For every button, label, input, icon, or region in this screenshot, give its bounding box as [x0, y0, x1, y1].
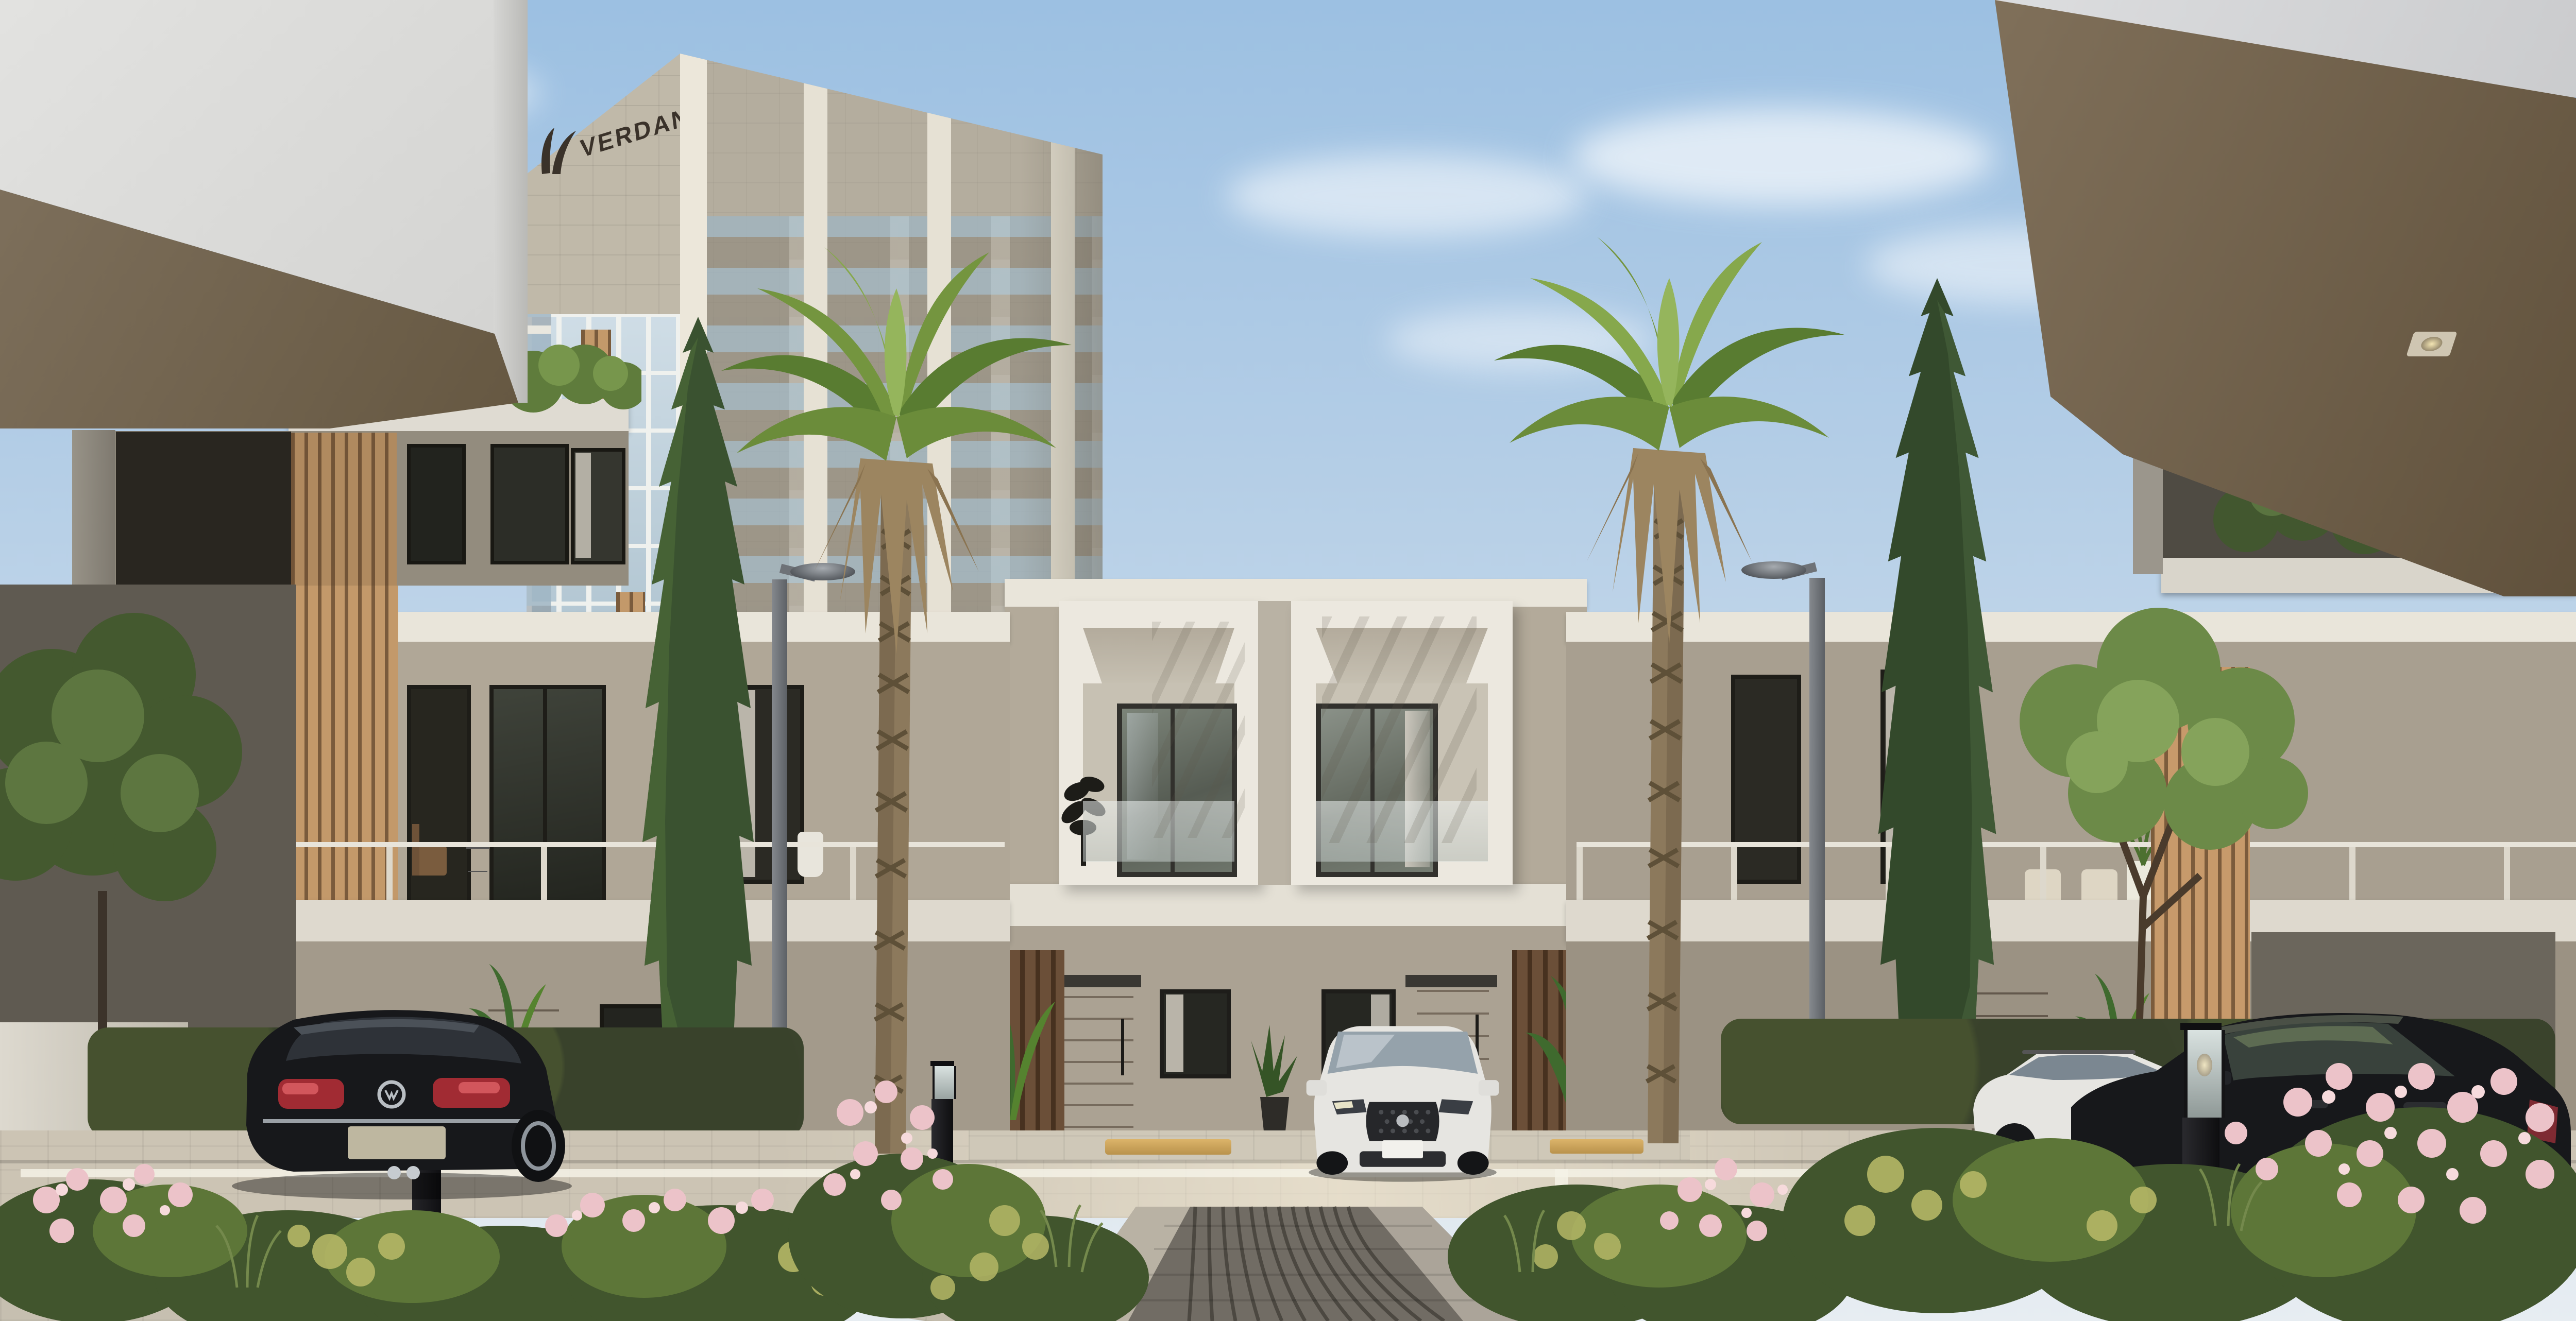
frond-shadow — [1152, 622, 1245, 838]
frond-shadow — [1322, 616, 1477, 843]
tail-light-glow — [282, 1083, 318, 1094]
flower-bed-center-left — [788, 1051, 1149, 1321]
render-canvas: VERDANA — [0, 0, 2576, 1321]
front-plate — [1382, 1140, 1423, 1158]
car-wheel — [1316, 1151, 1348, 1175]
foreground-soffit-right — [1989, 0, 2576, 603]
box-gap — [1258, 601, 1291, 885]
balcony-box-right — [1291, 601, 1513, 885]
recessed-downlight-icon — [2406, 332, 2458, 356]
window-curtain — [1166, 994, 1183, 1072]
flower-bed-left — [0, 1123, 907, 1321]
side-mirror-left — [1307, 1080, 1327, 1095]
palm-tree-left — [711, 242, 1082, 1169]
flower-bed-right — [1783, 1004, 2576, 1321]
palm-dry-skirt — [814, 458, 979, 654]
soffit-corner-column — [494, 0, 528, 403]
window-curtain — [575, 453, 591, 558]
maker-badge — [1396, 1114, 1409, 1127]
palm-dry-skirt — [1587, 448, 1752, 644]
palm-fronds — [1494, 237, 1844, 451]
ground-window — [1160, 989, 1231, 1078]
soffit-brown-plane — [1989, 0, 2576, 603]
tail-light-glow — [459, 1082, 500, 1093]
downlight-bulb — [2419, 337, 2444, 351]
palm-fronds — [721, 247, 1072, 461]
balcony-box-left — [1059, 601, 1258, 885]
foreground-soffit-left — [0, 0, 531, 587]
near-unit-window — [571, 448, 625, 564]
plant-leaves — [1251, 1025, 1297, 1097]
